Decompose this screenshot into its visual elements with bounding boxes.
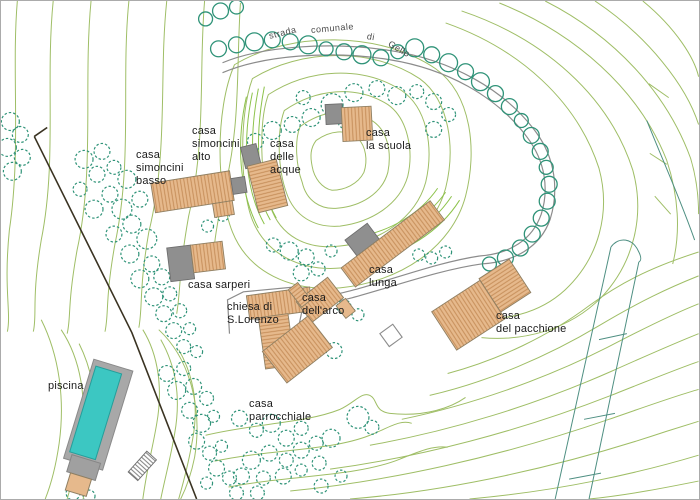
label-chiesa-s-lorenzo: chiesa di S.Lorenzo [227,301,279,327]
site-plan-map: strada comunale di Gello casa simoncini … [0,0,700,500]
site-plan-canvas [1,1,699,499]
label-casa-dell-arco: casa dell'arco [302,292,344,318]
label-casa-del-pacchione: casa del pacchione [496,310,567,336]
small-structure-outline [380,324,402,346]
building-casa-sarperi [167,241,226,281]
road-label-di: di [366,31,376,42]
steps-hatched [128,451,156,480]
label-casa-la-scuola: casa la scuola [366,127,411,153]
label-casa-delle-acque: casa delle acque [270,138,301,178]
label-casa-simoncini-alto: casa simoncini alto [192,125,240,165]
label-piscina: piscina [48,380,84,393]
label-casa-lunga: casa lunga [369,264,397,290]
label-casa-parrocchiale: casa parrocchiale [249,398,311,424]
parcel-strip-lines [555,121,694,499]
label-casa-simoncini-basso: casa simoncini basso [136,149,184,189]
label-casa-sarperi: casa sarperi [188,279,250,292]
